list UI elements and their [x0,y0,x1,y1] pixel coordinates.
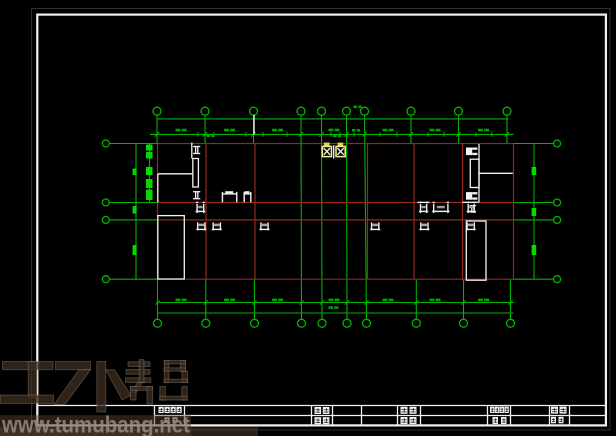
svg-text:www.tumubang.net: www.tumubang.net [1,412,190,436]
